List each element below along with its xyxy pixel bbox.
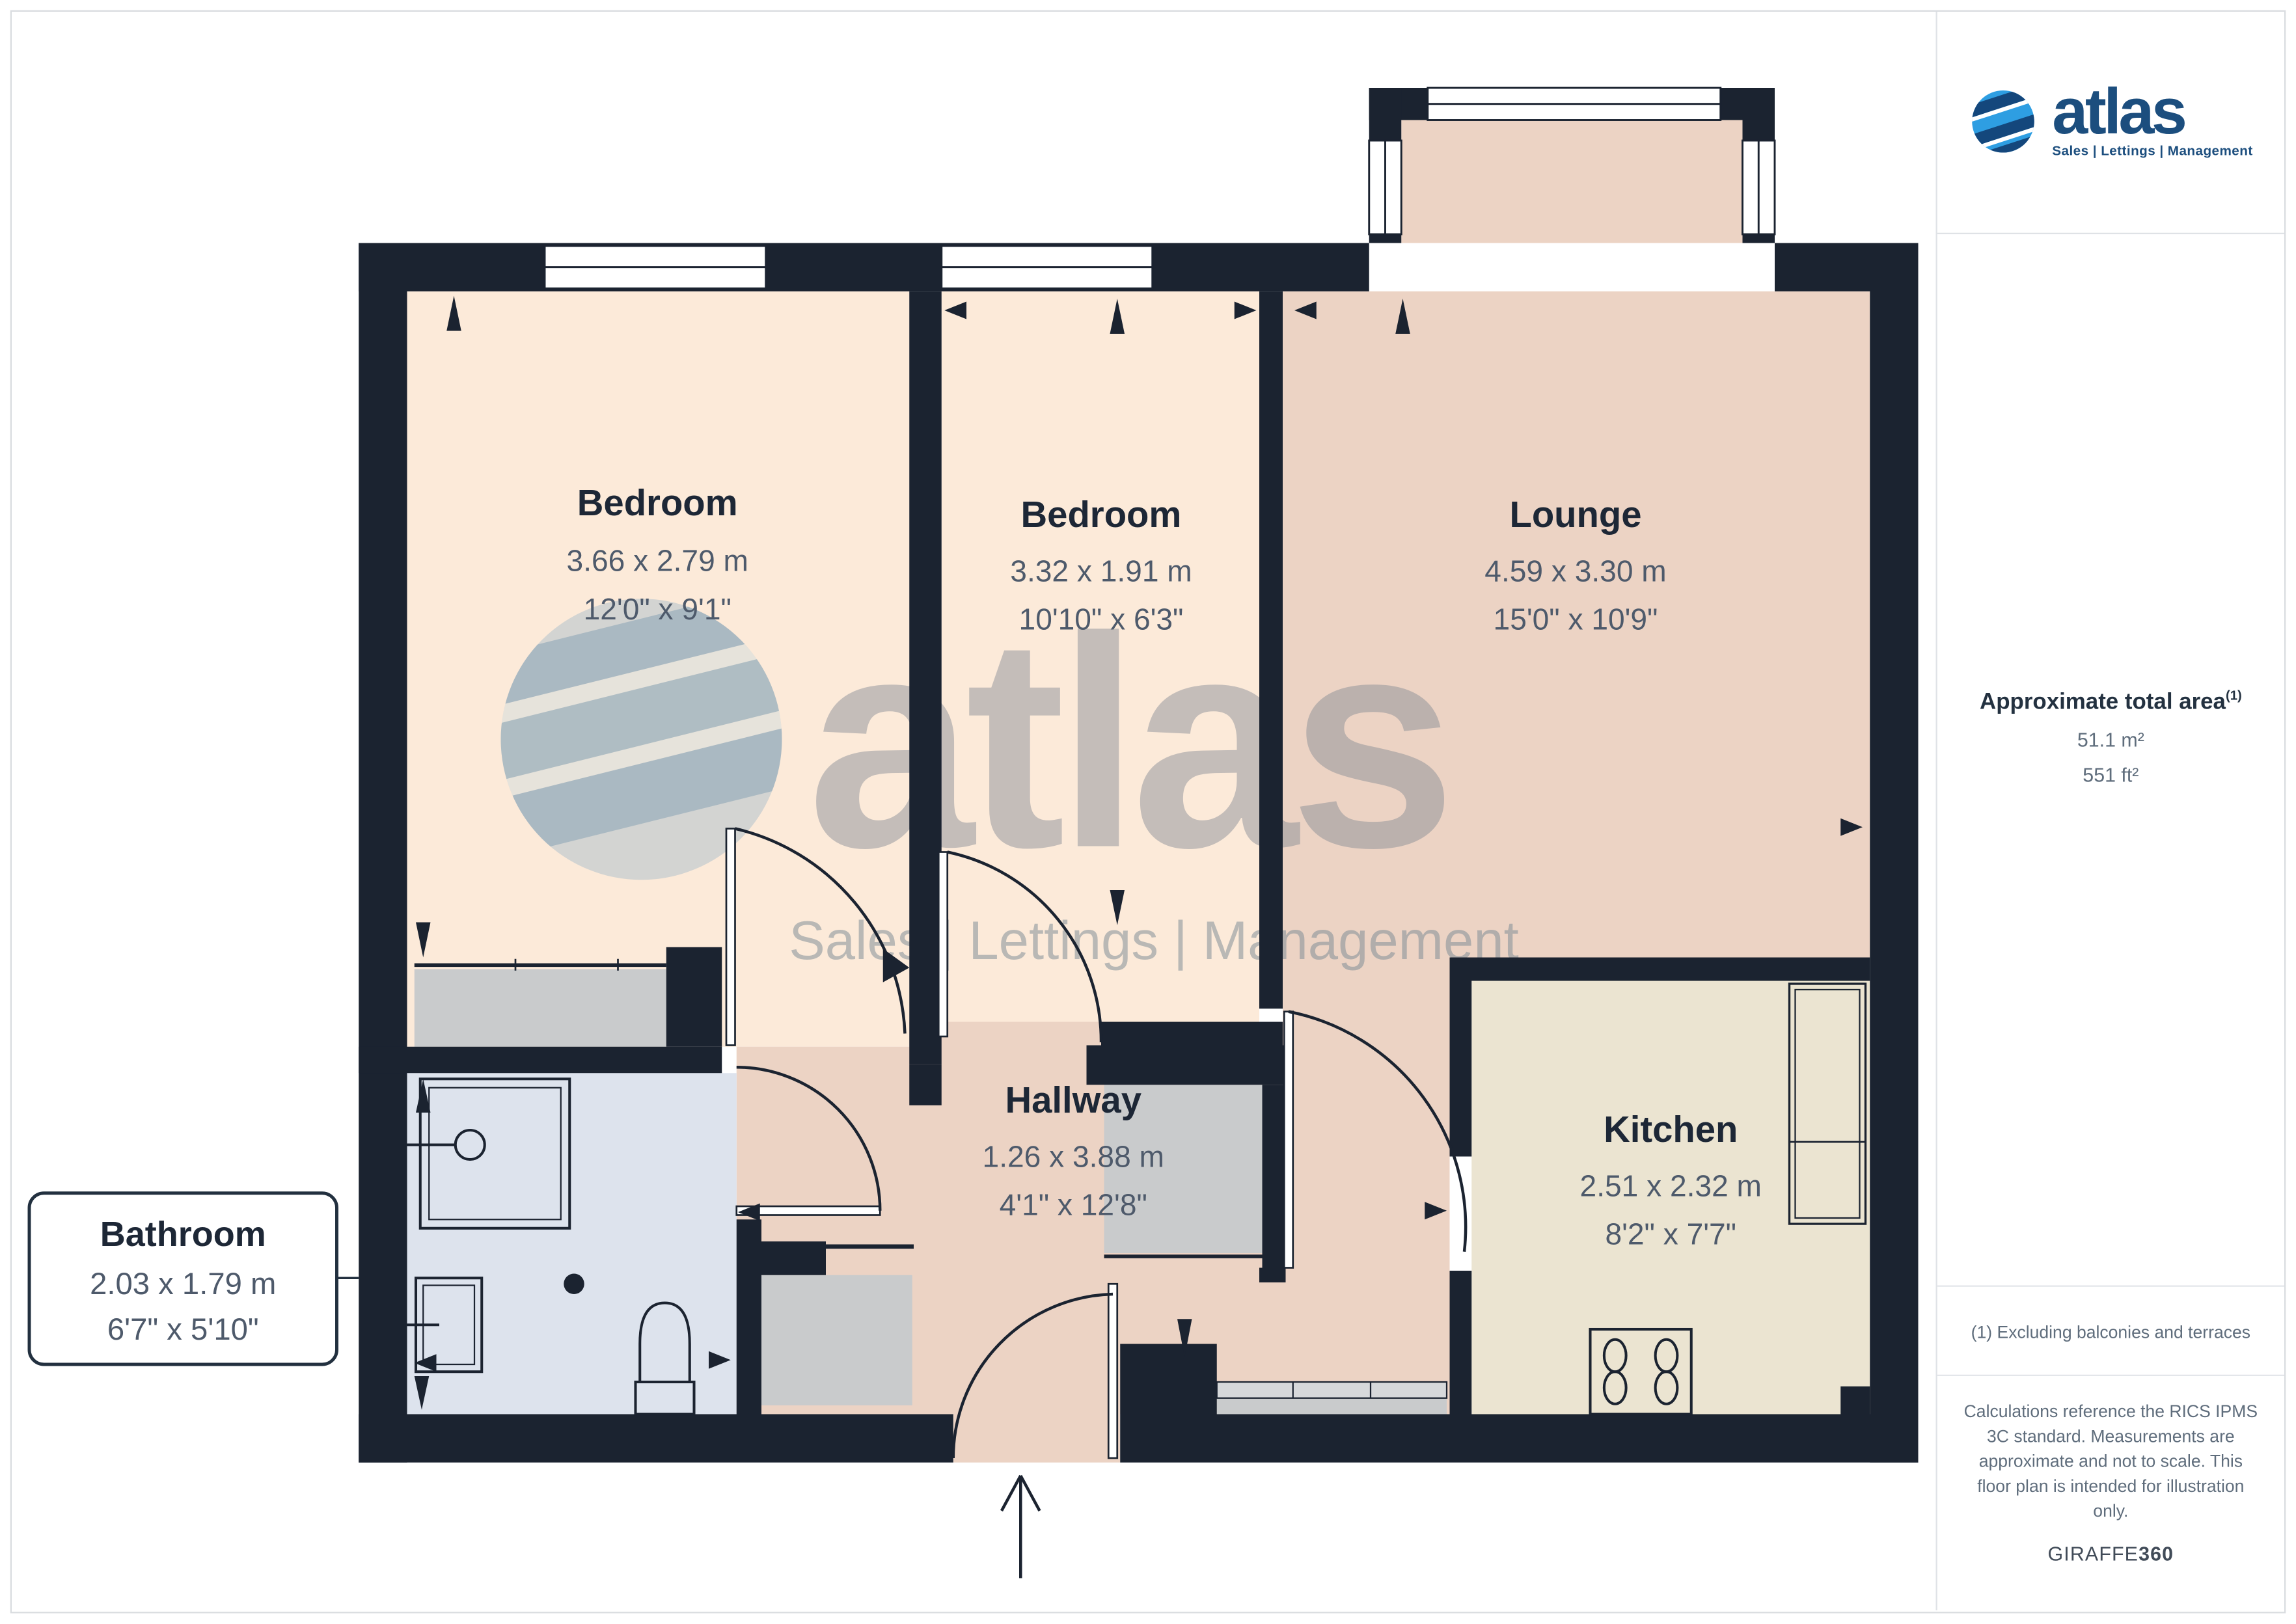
room-label-hallway: Hallway xyxy=(1005,1079,1141,1120)
bedroom2-window xyxy=(942,246,1153,288)
room-dims-m-hallway: 1.26 x 3.88 m xyxy=(983,1139,1164,1173)
total-area-title: Approximate total area(1) xyxy=(1937,688,2284,716)
front-door-threshold xyxy=(953,1414,1121,1463)
giraffe-num: 360 xyxy=(2139,1543,2174,1565)
bay-window-right xyxy=(1743,141,1775,234)
bedroom1-window xyxy=(545,246,766,288)
disclaimer-line: Calculations reference the RICS IPMS xyxy=(1937,1400,2284,1424)
disclaimer-line: 3C standard. Measurements are xyxy=(1937,1424,2284,1449)
logo-section: atlas Sales | Lettings | Management xyxy=(1937,12,2284,234)
wall-kitchen-left-upper xyxy=(1450,981,1472,1157)
wall-bottom-right-run xyxy=(1120,1414,1918,1463)
kitchen-hob xyxy=(1591,1329,1691,1414)
wall-bed2-bottom xyxy=(1101,1022,1283,1046)
room-dims-m-kitchen: 2.51 x 2.32 m xyxy=(1580,1169,1762,1202)
footnote-marker: (1) xyxy=(2226,688,2242,703)
room-dims-ft-lounge: 15'0" x 10'9" xyxy=(1494,602,1658,636)
room-dims-m-bedroom2: 3.32 x 1.91 m xyxy=(1010,554,1192,588)
room-dims-ft-bathroom: 6'7" x 5'10" xyxy=(107,1312,259,1347)
giraffe-word: GIRAFFE xyxy=(2048,1543,2139,1565)
room-dims-m-lounge: 4.59 x 3.30 m xyxy=(1484,554,1666,588)
room-label-bedroom1: Bedroom xyxy=(577,482,738,523)
room-label-kitchen: Kitchen xyxy=(1604,1109,1738,1150)
disclaimer-line: approximate and not to scale. This xyxy=(1937,1450,2284,1474)
wardrobe-front-line xyxy=(415,964,666,968)
wall-bottom-left-run xyxy=(359,1414,953,1463)
footnote-section: (1) Excluding balconies and terraces xyxy=(1937,1286,2284,1377)
wall-bed1-bed2-foot xyxy=(909,1064,942,1105)
wall-bed1-door-jamb xyxy=(666,947,722,1047)
room-dims-ft-bedroom1: 12'0" x 9'1" xyxy=(584,592,731,626)
wall-storage-chunk xyxy=(761,1241,826,1275)
bathroom-callout: Bathroom 2.03 x 1.79 m 6'7" x 5'10" xyxy=(29,1193,359,1364)
logo-brand: atlas xyxy=(2052,87,2184,139)
room-label-bathroom: Bathroom xyxy=(100,1215,266,1254)
wall-bathroom-right xyxy=(737,1219,761,1414)
wall-front-door-chunk xyxy=(1120,1344,1217,1414)
total-area-ft2: 551 ft² xyxy=(1937,765,2284,787)
room-label-lounge: Lounge xyxy=(1509,494,1641,535)
wall-kitchen-notch xyxy=(1840,1387,1870,1414)
wall-bed2-lounge xyxy=(1259,291,1283,1009)
storage-slide-line xyxy=(826,1245,914,1249)
hall-cupboard-door-line xyxy=(1104,1254,1263,1258)
logo-slogan: Sales | Lettings | Management xyxy=(2052,144,2252,159)
wall-kitchen-top xyxy=(1450,958,1870,981)
room-dims-ft-bedroom2: 10'10" x 6'3" xyxy=(1019,602,1184,636)
disclaimer-line: only. xyxy=(1937,1500,2284,1524)
corridor-floor xyxy=(1283,958,1450,1414)
bathroom-floor xyxy=(407,1073,737,1414)
wall-right xyxy=(1870,243,1918,1463)
disclaimer-line: floor plan is intended for illustration xyxy=(1937,1474,2284,1499)
bay-window-left xyxy=(1369,141,1402,234)
room-dims-ft-hallway: 4'1" x 12'8" xyxy=(1000,1188,1147,1222)
room-dims-m-bedroom1: 3.66 x 2.79 m xyxy=(567,544,748,578)
bay-floor xyxy=(1401,120,1745,243)
room-label-bedroom2: Bedroom xyxy=(1021,494,1182,535)
atlas-globe-icon xyxy=(1969,87,2039,157)
hall-bench-top xyxy=(1217,1382,1447,1398)
kitchen-counter xyxy=(1790,984,1866,1224)
wall-under-bedroom1 xyxy=(359,1047,722,1074)
total-area-block: Approximate total area(1) 51.1 m² 551 ft… xyxy=(1937,688,2284,787)
north-arrow-icon xyxy=(1002,1476,1040,1578)
wall-kitchen-left-lower xyxy=(1450,1271,1472,1414)
room-dims-ft-kitchen: 8'2" x 7'7" xyxy=(1605,1217,1736,1251)
bedroom1-wardrobe xyxy=(415,969,666,1047)
wall-top-left-run xyxy=(359,243,1369,291)
footnote-text: (1) Excluding balconies and terraces xyxy=(1971,1321,2250,1342)
room-dims-m-bathroom: 2.03 x 1.79 m xyxy=(90,1267,276,1301)
bay-window-top xyxy=(1428,88,1721,120)
wall-left xyxy=(359,243,407,1463)
disclaimer-section: Calculations reference the RICS IPMS 3C … xyxy=(1937,1375,2284,1525)
agency-logo: atlas Sales | Lettings | Management xyxy=(1969,87,2253,158)
drain-dot xyxy=(564,1274,584,1295)
wall-bed1-bed2 xyxy=(909,291,942,1064)
total-area-m2: 51.1 m² xyxy=(1937,729,2284,751)
floorplan-page: atlas Sales | Lettings | Management xyxy=(0,0,2296,1623)
wall-cupboard-right xyxy=(1263,1085,1286,1275)
hall-storage-box xyxy=(761,1275,912,1405)
giraffe360-brand: GIRAFFE360 xyxy=(1937,1543,2284,1565)
